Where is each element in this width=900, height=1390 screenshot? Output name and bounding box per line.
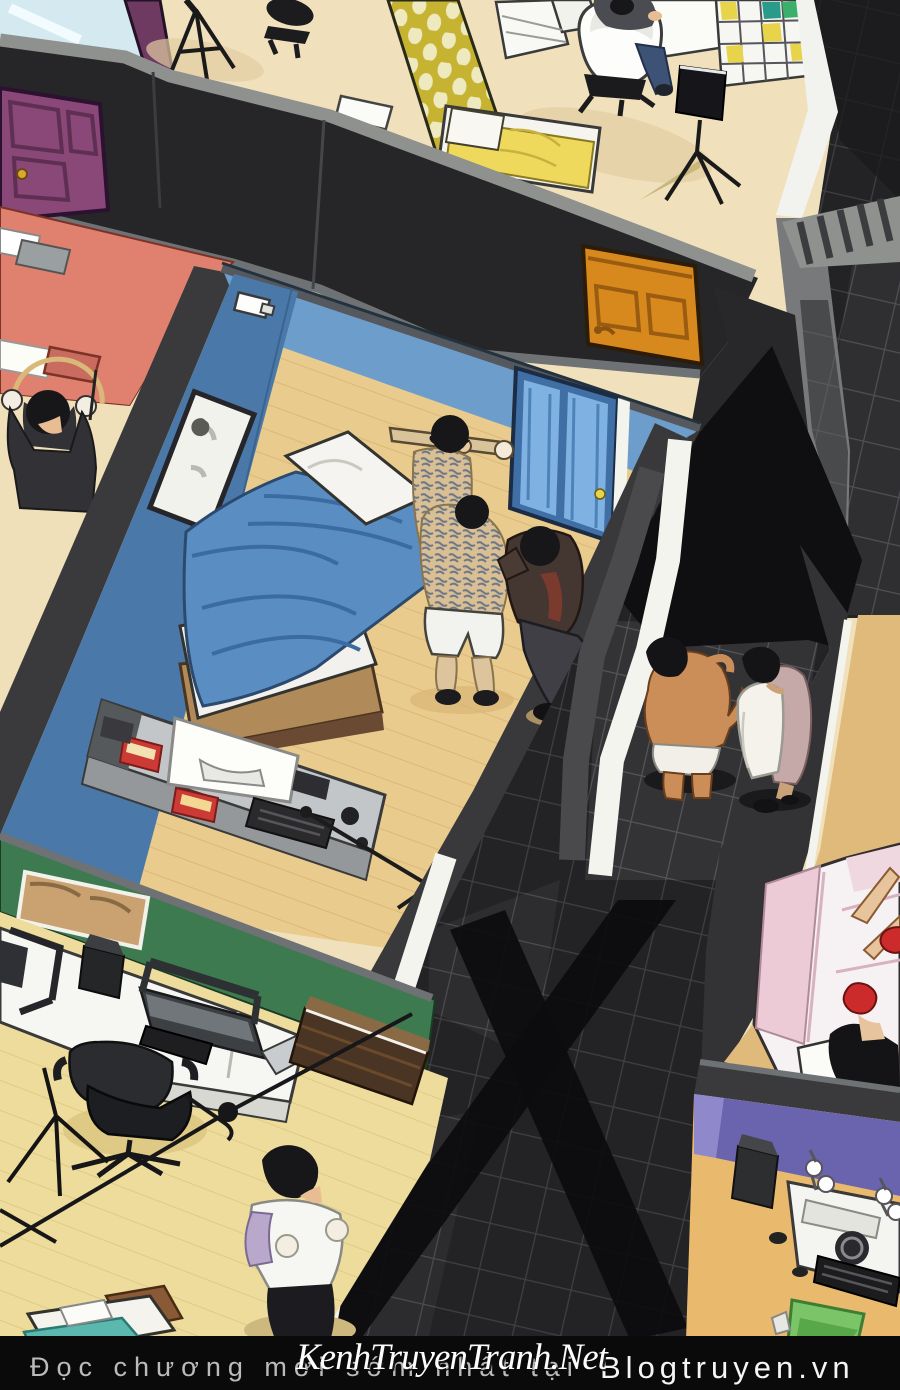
svg-text:KenhTruyenTranh.Net: KenhTruyenTranh.Net: [295, 1337, 610, 1378]
svg-text:Blogtruyen.vn: Blogtruyen.vn: [600, 1350, 855, 1385]
